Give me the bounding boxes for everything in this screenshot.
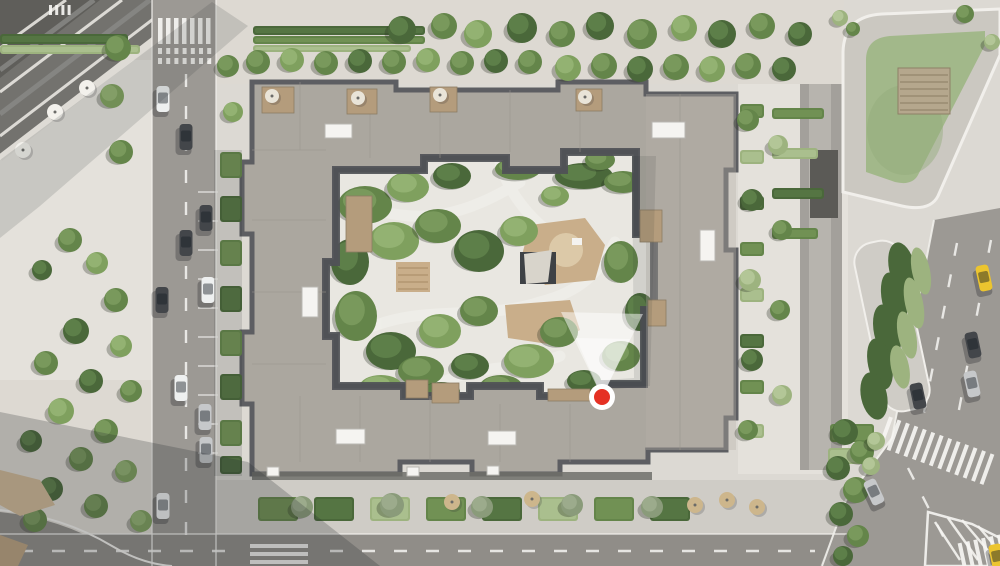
skylight <box>700 230 715 261</box>
east-wing-tone <box>646 94 736 450</box>
west-facade-shadow <box>214 150 242 476</box>
terrace-deck <box>346 196 372 252</box>
hedge-top <box>742 244 762 254</box>
hedge-top <box>316 499 352 519</box>
terrace-deck <box>406 380 428 398</box>
skylight <box>302 287 318 317</box>
timber-deck <box>396 262 430 292</box>
skylight <box>652 122 685 138</box>
car <box>152 287 169 318</box>
skylight <box>325 124 352 138</box>
car <box>198 277 215 308</box>
skylight <box>407 467 419 476</box>
hedge-top <box>742 336 762 346</box>
car <box>176 124 193 155</box>
crosswalk-stripe <box>68 5 71 15</box>
hedge-top <box>255 47 409 50</box>
crosswalk-stripe <box>61 5 64 15</box>
skylight <box>488 431 516 445</box>
arcade-strip <box>252 472 652 480</box>
terrace-deck <box>432 383 459 403</box>
skylight <box>267 467 279 476</box>
aerial-masterplan-view <box>0 0 1000 566</box>
hedge-top <box>774 190 822 197</box>
car <box>176 230 193 261</box>
hedge-top <box>742 382 762 392</box>
lane-deck-structure <box>810 150 838 218</box>
hedge-top <box>742 152 762 162</box>
skylight <box>336 429 365 444</box>
viewpoint-marker[interactable] <box>594 389 610 405</box>
car <box>196 205 213 236</box>
car <box>171 375 188 406</box>
terrace-deck <box>548 389 590 401</box>
picnic-table <box>572 238 582 245</box>
hedge-top <box>774 110 822 117</box>
east-service-lane-center <box>809 84 831 470</box>
scene-svg <box>0 0 1000 566</box>
pavilion-canopy <box>524 250 552 284</box>
crosswalk-stripe <box>55 5 58 15</box>
skylight <box>487 466 499 475</box>
hedge-top <box>596 499 632 519</box>
crosswalk-stripe <box>49 5 52 15</box>
car <box>195 404 212 435</box>
